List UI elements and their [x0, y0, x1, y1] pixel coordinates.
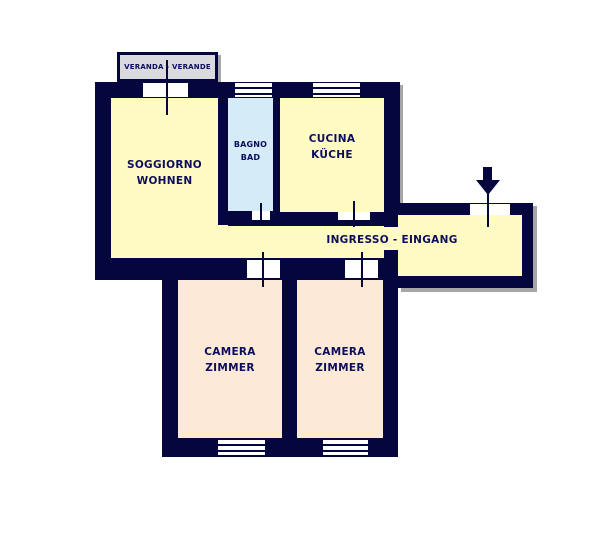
label-cucina: CUCINA KÜCHE: [280, 131, 384, 163]
label-soggiorno: SOGGIORNO WOHNEN: [111, 157, 218, 189]
wall-corridor-bottom-right: [398, 276, 533, 288]
label-cucina-line1: CUCINA: [280, 131, 384, 147]
floor-plan: VERANDA - VERANDE SOGGIORNO WOHNEN BAGNO…: [0, 0, 609, 537]
label-camera-2: CAMERA ZIMMER: [297, 344, 383, 376]
label-camera-1-line2: ZIMMER: [178, 360, 282, 376]
shadow-veranda-right: [218, 55, 221, 82]
wall-bedrooms-divider: [282, 260, 297, 438]
entrance-arrow-stem: [483, 167, 492, 181]
window-bagno: [235, 83, 272, 97]
label-camera-2-line2: ZIMMER: [297, 360, 383, 376]
wall-left-main: [95, 82, 111, 278]
door-entrance: [470, 204, 510, 215]
label-bagno: BAGNO BAD: [228, 138, 273, 164]
label-camera-1: CAMERA ZIMMER: [178, 344, 282, 376]
wall-bagno-cucina: [273, 98, 280, 212]
wall-bagno-cucina-bottom: [218, 211, 400, 226]
door-axis-veranda: [166, 60, 168, 115]
window-cucina: [313, 83, 360, 97]
wall-soggiorno-bagno: [218, 98, 228, 225]
shadow-corridor-right: [533, 206, 537, 291]
door-axis-cucina: [353, 201, 355, 227]
shadow-cucina-right: [400, 85, 403, 203]
label-camera-2-line1: CAMERA: [297, 344, 383, 360]
window-camera-1: [218, 440, 265, 455]
label-cucina-line2: KÜCHE: [280, 147, 384, 163]
label-bagno-line2: BAD: [228, 151, 273, 164]
wall-corridor-top-right: [398, 203, 533, 215]
shadow-corridor-bottom: [401, 288, 537, 292]
wall-bedrooms-right: [383, 250, 398, 457]
label-ingresso: INGRESSO - EINGANG: [312, 232, 472, 248]
door-axis-camera-2: [361, 252, 363, 287]
label-camera-1-line1: CAMERA: [178, 344, 282, 360]
wall-bedrooms-left: [162, 258, 178, 457]
opening-soggiorno-ingresso: [218, 225, 228, 258]
door-axis-bagno: [260, 203, 262, 226]
label-soggiorno-line2: WOHNEN: [111, 173, 218, 189]
door-axis-camera-1: [262, 252, 264, 287]
label-bagno-line1: BAGNO: [228, 138, 273, 151]
label-soggiorno-line1: SOGGIORNO: [111, 157, 218, 173]
label-ingresso-text: INGRESSO - EINGANG: [312, 232, 472, 248]
entrance-arrow-head: [476, 180, 500, 195]
door-axis-entrance: [487, 190, 489, 227]
window-camera-2: [323, 440, 368, 455]
